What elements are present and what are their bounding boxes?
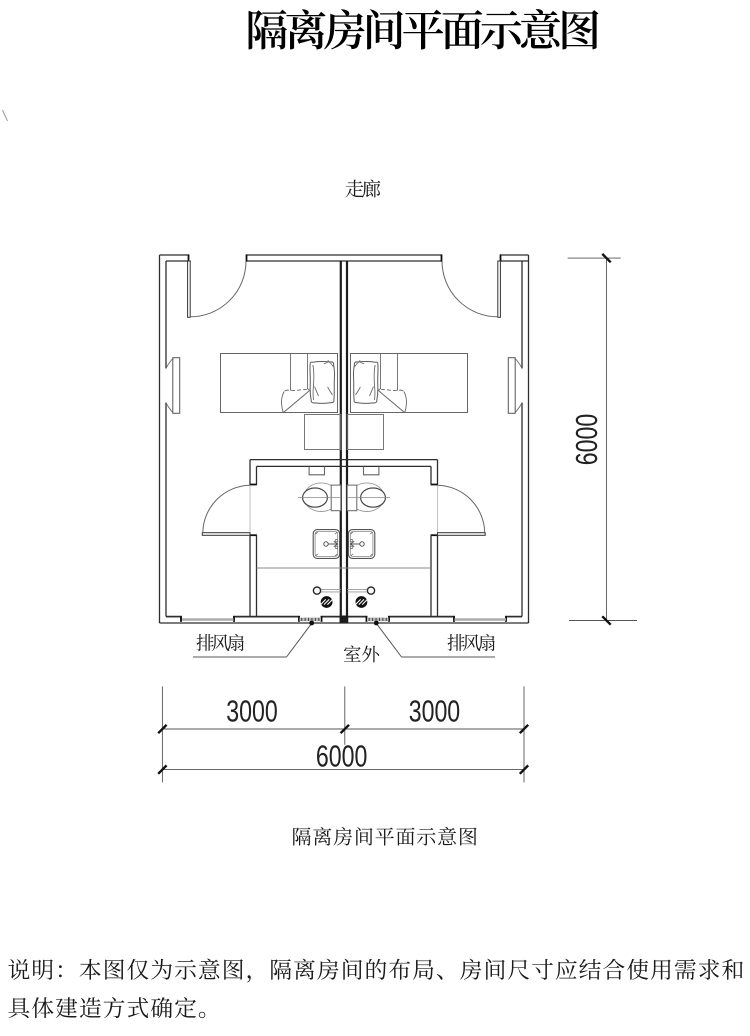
svg-text:3000: 3000 <box>226 694 277 729</box>
svg-text:6000: 6000 <box>316 738 368 773</box>
svg-text:3000: 3000 <box>409 694 461 729</box>
svg-text:6000: 6000 <box>569 414 604 466</box>
